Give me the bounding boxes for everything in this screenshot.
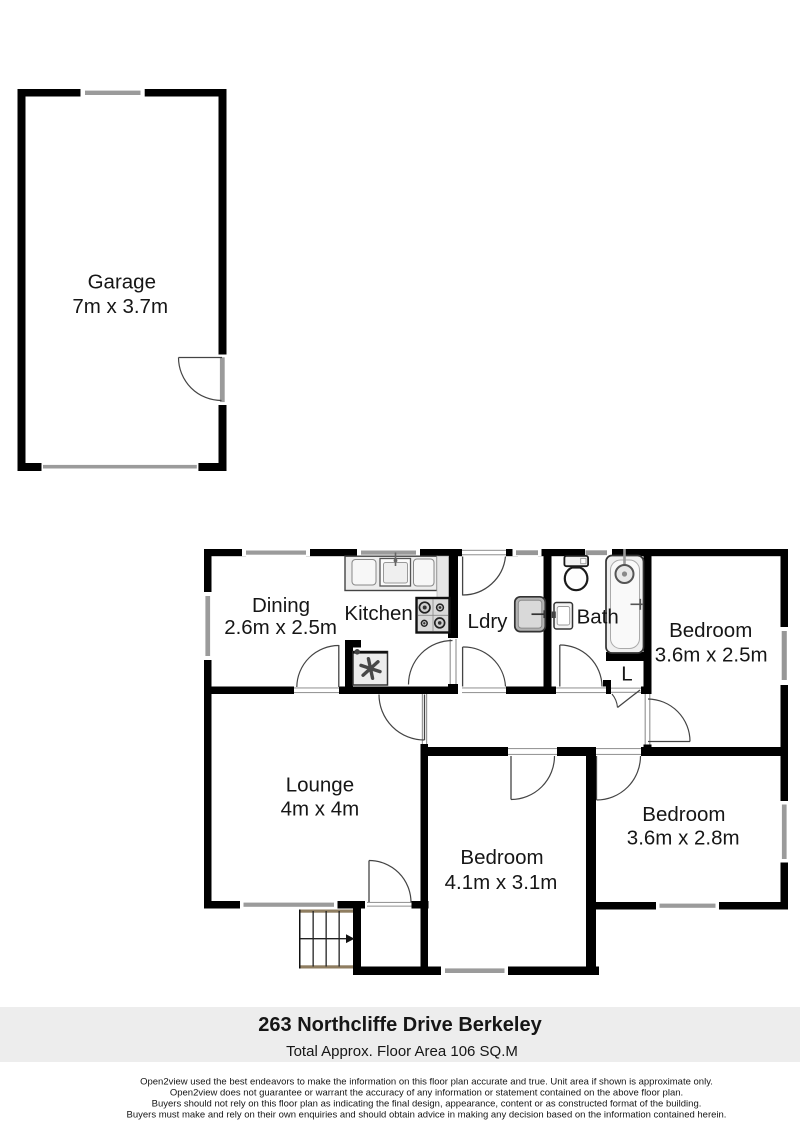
svg-text:263 Northcliffe Drive Berkeley: 263 Northcliffe Drive Berkeley (258, 1014, 542, 1036)
svg-text:Bath: Bath (577, 605, 619, 628)
svg-text:Bedroom: Bedroom (460, 846, 543, 869)
svg-text:2.6m x 2.5m: 2.6m x 2.5m (224, 616, 337, 639)
svg-text:Garage: Garage (88, 271, 156, 294)
svg-text:4m x 4m: 4m x 4m (281, 798, 360, 821)
svg-text:Ldry: Ldry (468, 610, 509, 633)
svg-text:Buyers should not rely on this: Buyers should not rely on this floor pla… (152, 1099, 702, 1110)
svg-text:4.1m x 3.1m: 4.1m x 3.1m (445, 871, 558, 894)
svg-text:Dining: Dining (252, 594, 310, 617)
svg-text:L: L (621, 662, 632, 685)
svg-text:3.6m x 2.8m: 3.6m x 2.8m (627, 826, 740, 849)
svg-text:Lounge: Lounge (286, 773, 354, 796)
svg-text:3.6m x 2.5m: 3.6m x 2.5m (655, 643, 768, 666)
svg-text:Bedroom: Bedroom (669, 619, 752, 642)
svg-text:Open2view does not guarantee o: Open2view does not guarantee or warrant … (170, 1088, 683, 1099)
svg-text:7m x 3.7m: 7m x 3.7m (72, 295, 168, 318)
svg-text:Total Approx. Floor Area 106 S: Total Approx. Floor Area 106 SQ.M (286, 1043, 518, 1060)
svg-text:Bedroom: Bedroom (642, 803, 725, 826)
svg-text:Kitchen: Kitchen (344, 602, 412, 625)
svg-text:Open2view used the best endeav: Open2view used the best endeavors to mak… (140, 1077, 713, 1088)
svg-text:Buyers must make and rely on t: Buyers must make and rely on their own e… (127, 1110, 727, 1121)
